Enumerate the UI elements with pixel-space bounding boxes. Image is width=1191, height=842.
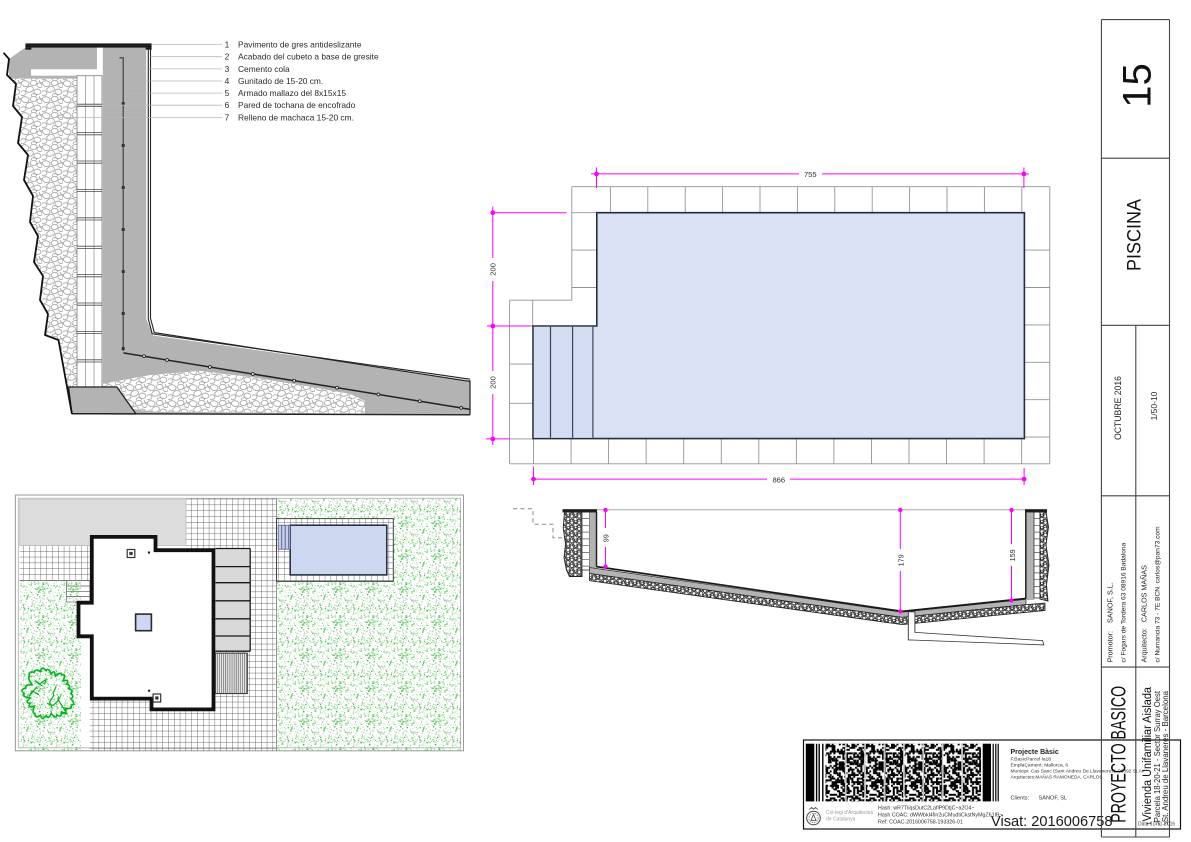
svg-text:200: 200 [489,263,498,276]
svg-text:c/ Numancia 73 - 7E BCN carlo: c/ Numancia 73 - 7E BCN carlos@pan73.com [1155,526,1162,663]
svg-text:Pared de tochana de encofrado: Pared de tochana de encofrado [238,100,356,110]
svg-text:c/ Fogars de Tordera 63 08916: c/ Fogars de Tordera 63 08916 Badalona [1121,542,1128,662]
svg-text:200: 200 [489,376,498,389]
svg-text:Gunitado de 15-20 cm.: Gunitado de 15-20 cm. [238,76,323,86]
svg-text:Armado mallazo del 8x15x15: Armado mallazo del 8x15x15 [238,88,346,98]
svg-text:Hash COAC: dWWbkl4fin2uCMudtiC: Hash COAC: dWWbkl4fin2uCMudtiCkstNyMgZ61… [878,813,1003,819]
svg-text:Arquitectes:MAÑAS RAMONEDA, CA: Arquitectes:MAÑAS RAMONEDA, CARLOS [1011,774,1104,781]
svg-text:Relleno de machaca 15-20 cm.: Relleno de machaca 15-20 cm. [238,112,354,122]
svg-text:3St. Andreu de Llavaneres - Ba: 3St. Andreu de Llavaneres - Barcelona [1160,691,1170,825]
svg-text:Cemento cola: Cemento cola [238,64,290,74]
svg-text:1/50-10: 1/50-10 [1149,391,1159,420]
svg-text:PROYECTO BASICO: PROYECTO BASICO [1108,686,1131,823]
svg-text:179: 179 [897,554,906,566]
svg-text:PISCINA: PISCINA [1125,199,1146,271]
svg-text:Hash: wR7TliqsDutC2LaflP9DtjC~: Hash: wR7TliqsDutC2LaflP9DtjC~a2O4~ [878,806,975,812]
svg-text:5: 5 [225,88,230,98]
svg-text:159: 159 [1008,549,1017,561]
svg-text:755: 755 [804,170,817,179]
svg-text:de Catalunya: de Catalunya [826,817,856,823]
svg-text:3: 3 [225,64,230,74]
svg-text:F.BasicParcel·la18: F.BasicParcel·la18 [1011,757,1052,763]
svg-text:2: 2 [225,52,230,62]
svg-text:866: 866 [772,475,785,484]
svg-text:EmplaÇament: Mallorca, 6: EmplaÇament: Mallorca, 6 [1011,763,1069,769]
svg-text:Acabado del cubeto a base de g: Acabado del cubeto a base de gresite [238,52,379,62]
svg-text:Projecte Bàsic: Projecte Bàsic [1011,749,1059,756]
svg-text:Ref: COAC-2016006758-193326-01: Ref: COAC-2016006758-193326-01 [878,820,963,826]
svg-text:Promotor: SANOF, S.L.: Promotor: SANOF, S.L. [1106,582,1115,662]
svg-text:OCTUBRE 2016: OCTUBRE 2016 [1113,376,1124,440]
svg-text:6: 6 [225,100,230,110]
svg-text:Visat: 2016006758: Visat: 2016006758 [991,814,1112,830]
svg-text:1: 1 [225,40,230,50]
svg-text:Pavimento de gres antideslizan: Pavimento de gres antideslizante [238,40,362,50]
svg-text:Clients: SANOF, SL: Clients: SANOF, SL [1011,796,1068,802]
svg-text:4: 4 [225,76,230,86]
svg-text:7: 7 [225,112,230,122]
svg-text:Arquitecto: CARLOS MAÑAS: Arquitecto: CARLOS MAÑAS [1140,565,1149,663]
svg-text:15: 15 [1116,63,1160,108]
svg-text:Col·legi d'Arquitectes: Col·legi d'Arquitectes [826,810,874,816]
svg-text:99: 99 [602,534,611,542]
